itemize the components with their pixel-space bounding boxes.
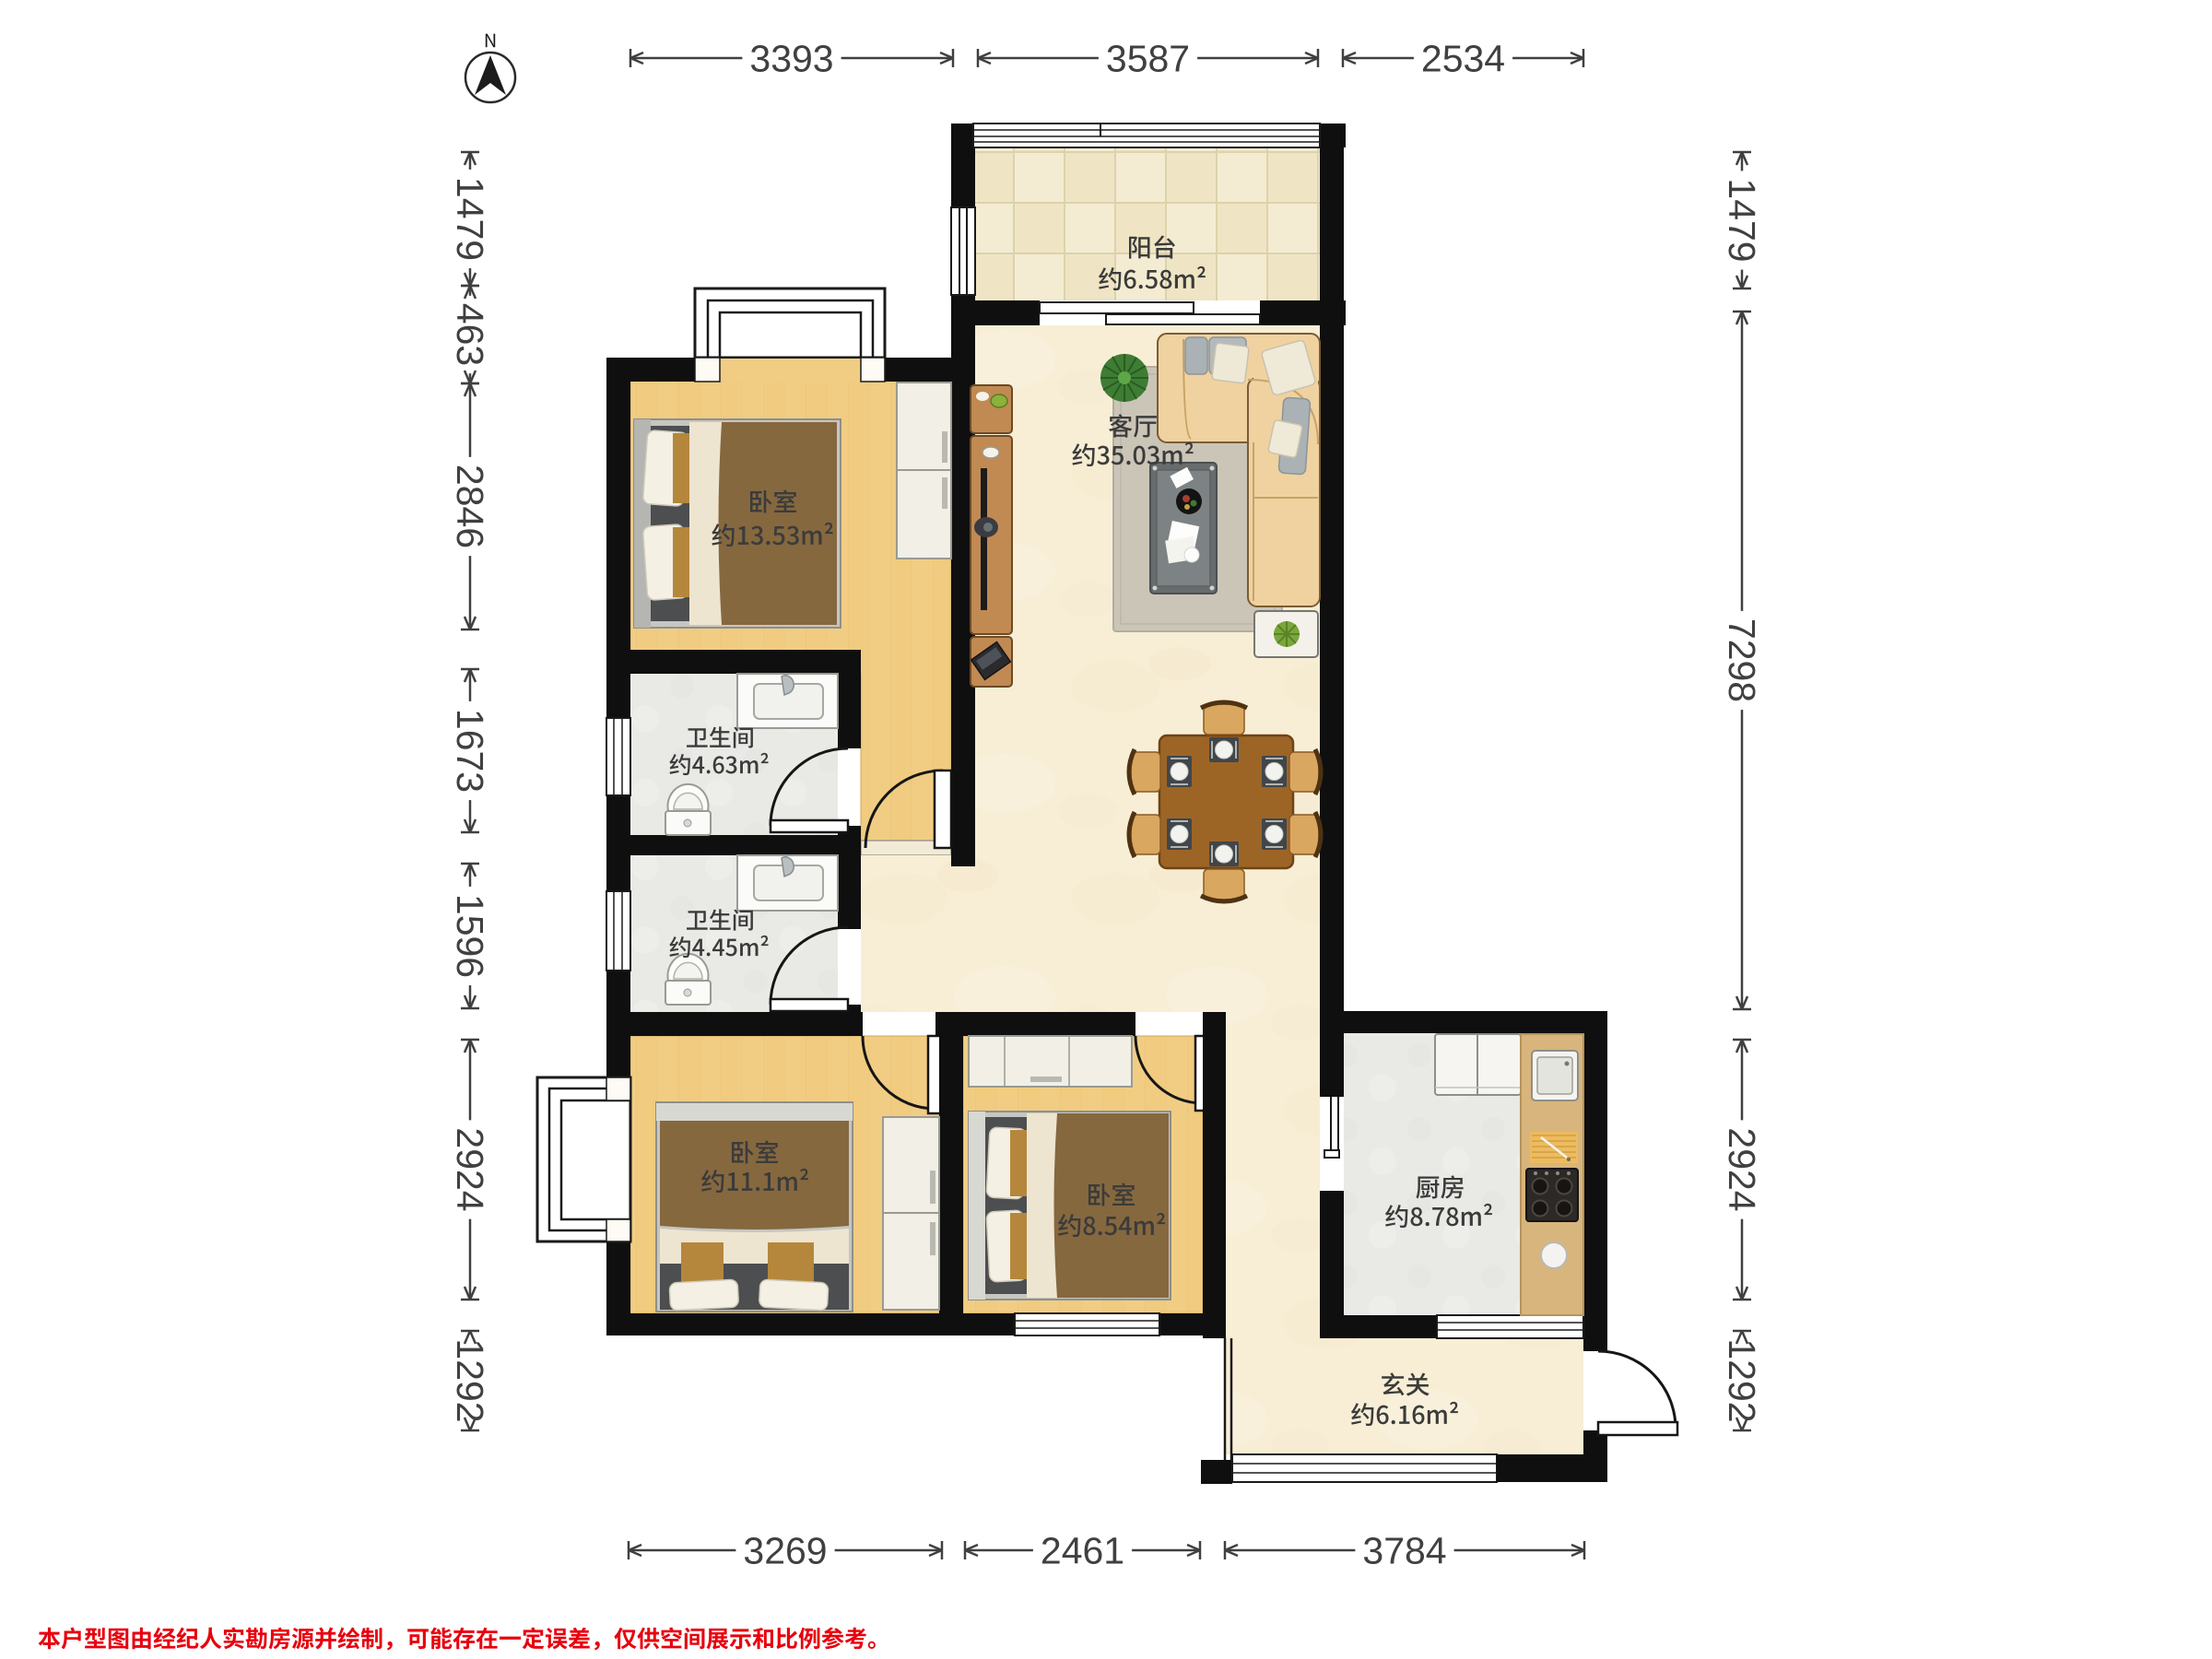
svg-text:3587: 3587 (1106, 37, 1190, 79)
svg-text:1292: 1292 (449, 1338, 491, 1422)
svg-text:2461: 2461 (1041, 1529, 1124, 1571)
svg-text:2534: 2534 (1421, 37, 1505, 79)
svg-text:3269: 3269 (743, 1529, 827, 1571)
svg-text:2924: 2924 (449, 1127, 491, 1211)
svg-text:2924: 2924 (1721, 1127, 1763, 1211)
svg-text:7298: 7298 (1721, 618, 1763, 702)
svg-text:1479: 1479 (1721, 178, 1763, 262)
svg-text:1673: 1673 (449, 709, 491, 793)
svg-text:3393: 3393 (749, 37, 833, 79)
svg-text:463: 463 (449, 303, 491, 366)
svg-text:1596: 1596 (449, 894, 491, 978)
svg-text:3784: 3784 (1362, 1529, 1446, 1571)
svg-text:2846: 2846 (449, 465, 491, 548)
svg-text:1292: 1292 (1721, 1338, 1763, 1422)
svg-text:1479: 1479 (449, 177, 491, 261)
